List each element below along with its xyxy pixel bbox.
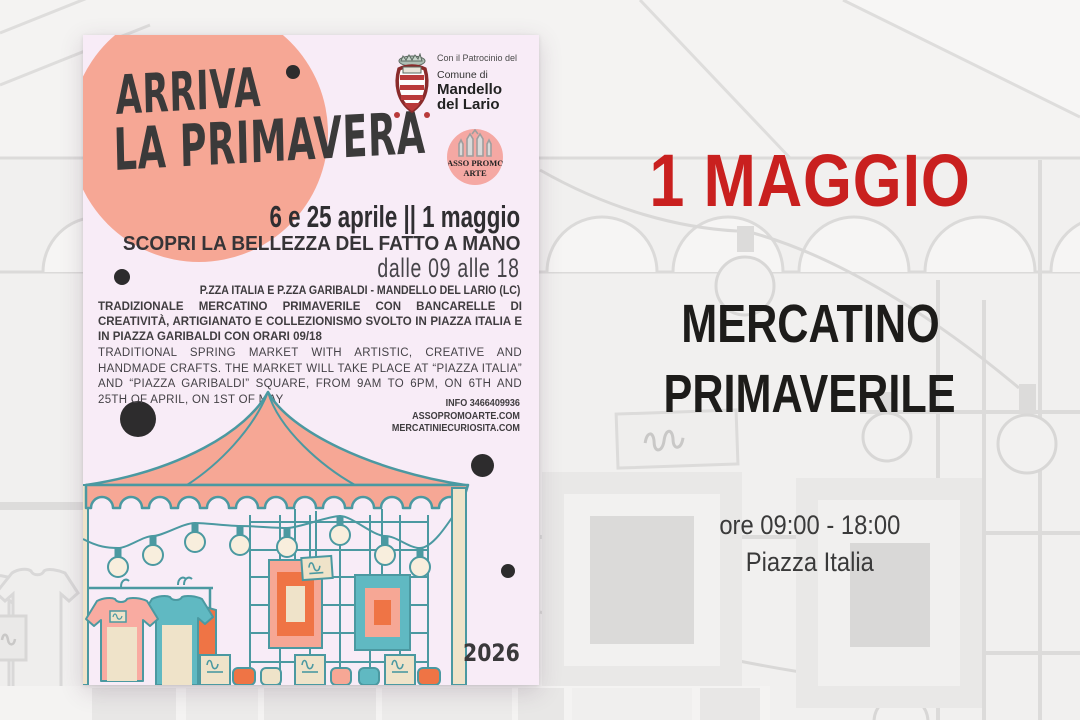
asso-logo-line1: ASSO PROMO	[447, 158, 503, 168]
municipality-patronage: Con il Patrocinio del Comune di Mandello…	[393, 53, 517, 123]
event-location-text: Piazza Italia	[746, 547, 874, 578]
municipality-name: Mandello	[437, 82, 517, 97]
event-date-heading: 1 MAGGIO	[540, 138, 1080, 223]
event-hours-line: ore 09:00 - 18:00	[540, 510, 1080, 541]
poster-title-line2: LA PRIMAVERA	[113, 104, 426, 179]
dot-decoration	[114, 269, 130, 285]
bg-picture-frames	[542, 472, 982, 708]
dot-decoration	[286, 65, 300, 79]
event-title-line2: PRIMAVERILE	[664, 366, 956, 423]
tent-scalloped-valance	[86, 485, 468, 508]
tent-left-pole	[83, 485, 88, 685]
bg-market-table-strip	[0, 686, 770, 720]
event-poster: ARRIVA LA PRIMAVERA Con il Patrocinio de…	[83, 35, 539, 685]
cathedral-icon	[447, 129, 503, 157]
poster-year: 2026	[463, 639, 520, 667]
patronage-line: Comune di	[437, 69, 517, 81]
event-location-line: P.ZZA ITALIA E P.ZZA GARIBALDI - MANDELL…	[199, 283, 520, 297]
coat-of-arms-icon	[393, 53, 431, 123]
event-location: Piazza Italia	[540, 547, 1080, 578]
grid-sign-card	[301, 556, 332, 580]
event-dates: 6 e 25 aprile || 1 maggio	[269, 199, 520, 235]
patronage-line: Con il Patrocinio del	[437, 53, 517, 63]
event-hours: dalle 09 alle 18	[378, 253, 520, 284]
patronage-text: Con il Patrocinio del Comune di Mandello…	[437, 53, 517, 123]
asso-logo-line2: ARTE	[447, 168, 503, 178]
asso-promo-arte-logo: ASSO PROMO ARTE	[447, 129, 503, 185]
municipality-name: del Lario	[437, 97, 517, 112]
teal-picture-frame	[355, 575, 410, 650]
event-hours-text: ore 09:00 - 18:00	[720, 510, 901, 541]
flyer-canvas: ARRIVA LA PRIMAVERA Con il Patrocinio de…	[0, 0, 1080, 720]
tent-roof	[86, 392, 465, 485]
description-italian: TRADIZIONALE MERCATINO PRIMAVERILE CON B…	[98, 300, 522, 345]
pink-tshirt	[86, 598, 158, 681]
event-title-line1: MERCATINO	[681, 296, 939, 353]
event-date-text: 1 MAGGIO	[649, 138, 970, 223]
event-title-heading: MERCATINO PRIMAVERILE	[540, 296, 1080, 436]
